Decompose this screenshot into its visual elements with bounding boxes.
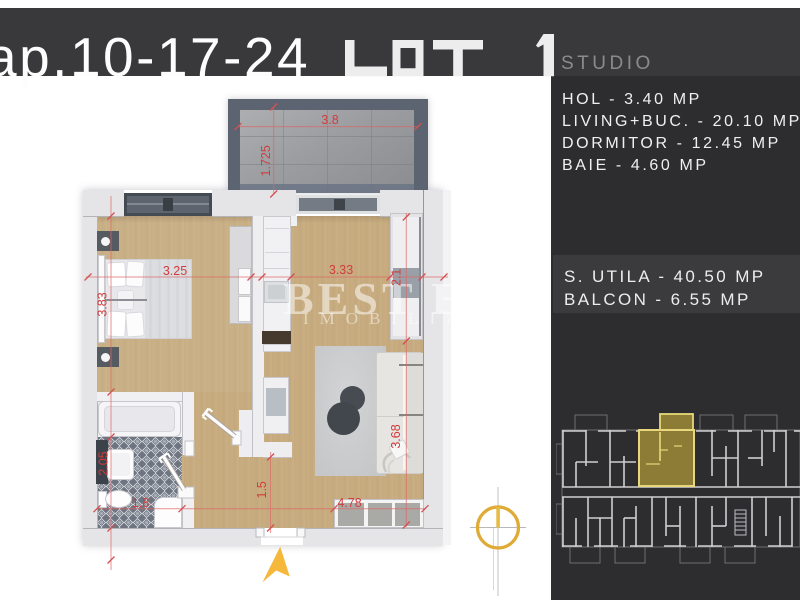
- svg-text:3.8: 3.8: [321, 113, 338, 127]
- svg-text:2.1: 2.1: [390, 269, 404, 286]
- svg-text:4.78: 4.78: [337, 496, 361, 510]
- svg-text:2.05: 2.05: [97, 451, 111, 475]
- svg-text:3.68: 3.68: [389, 424, 403, 448]
- svg-text:3.33: 3.33: [329, 263, 353, 277]
- svg-text:1.725: 1.725: [259, 145, 273, 176]
- svg-text:1.5: 1.5: [255, 481, 269, 498]
- svg-text:1.8: 1.8: [132, 496, 149, 510]
- svg-text:3.83: 3.83: [96, 292, 110, 316]
- svg-text:3.25: 3.25: [163, 264, 187, 278]
